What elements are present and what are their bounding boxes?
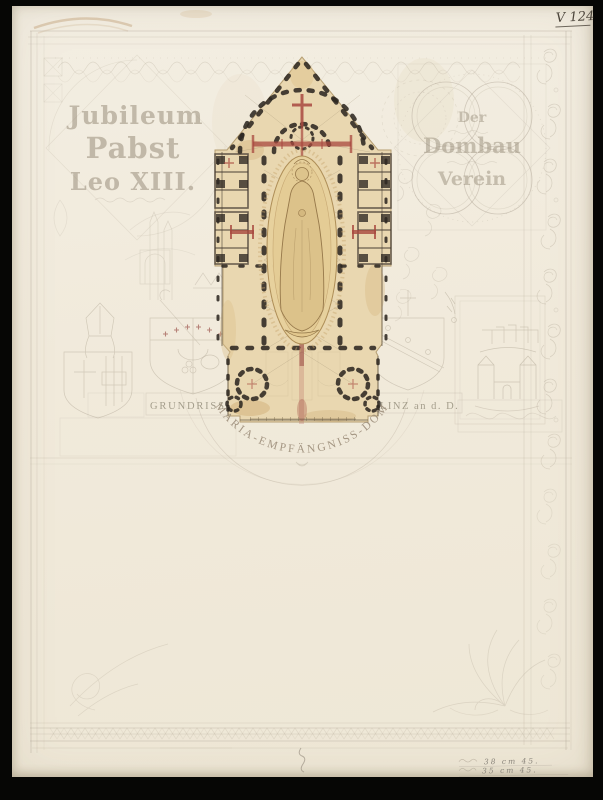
pinnacle-sketch — [140, 212, 172, 300]
scribble-bottom-center — [299, 748, 305, 772]
jubileum-title-line2: Pabst — [86, 131, 181, 165]
margin-note-line2: 35 cm 45. — [482, 765, 538, 775]
stain-top-left — [34, 18, 132, 28]
dombau-panel-line2: Dombau — [423, 133, 521, 158]
bishop-arms-left — [64, 303, 132, 418]
castle-sketch — [478, 356, 536, 399]
archive-mark: V 124 — [556, 9, 595, 26]
illegible-word-2 — [459, 768, 476, 771]
city-arms-linz — [455, 296, 545, 424]
scanned-drawing: GRUNDRISS des LINZ an d. D. — [0, 0, 603, 800]
lattice-band-bottom — [50, 728, 554, 739]
headline-flourish — [95, 198, 165, 202]
jubileum-title-line1: Jubileum — [66, 101, 203, 130]
dombau-panel-line3: Verein — [437, 168, 506, 190]
illegible-word-1 — [459, 759, 477, 762]
jubileum-title-line3: Leo XIII. — [70, 167, 196, 196]
archive-mark-group: V 124 — [555, 9, 595, 27]
caption-linz: LINZ an d. D. — [380, 401, 459, 412]
drawing-overlay: GRUNDRISS des LINZ an d. D. — [0, 0, 603, 800]
dombau-panel-line1: Der — [458, 110, 487, 126]
mural-crown-sketch — [480, 325, 538, 352]
ornament-border-right — [537, 49, 560, 689]
corner-ornament-bottom-left — [70, 644, 168, 716]
margin-notes: 38 cm 45. 35 cm 45. — [459, 756, 568, 776]
